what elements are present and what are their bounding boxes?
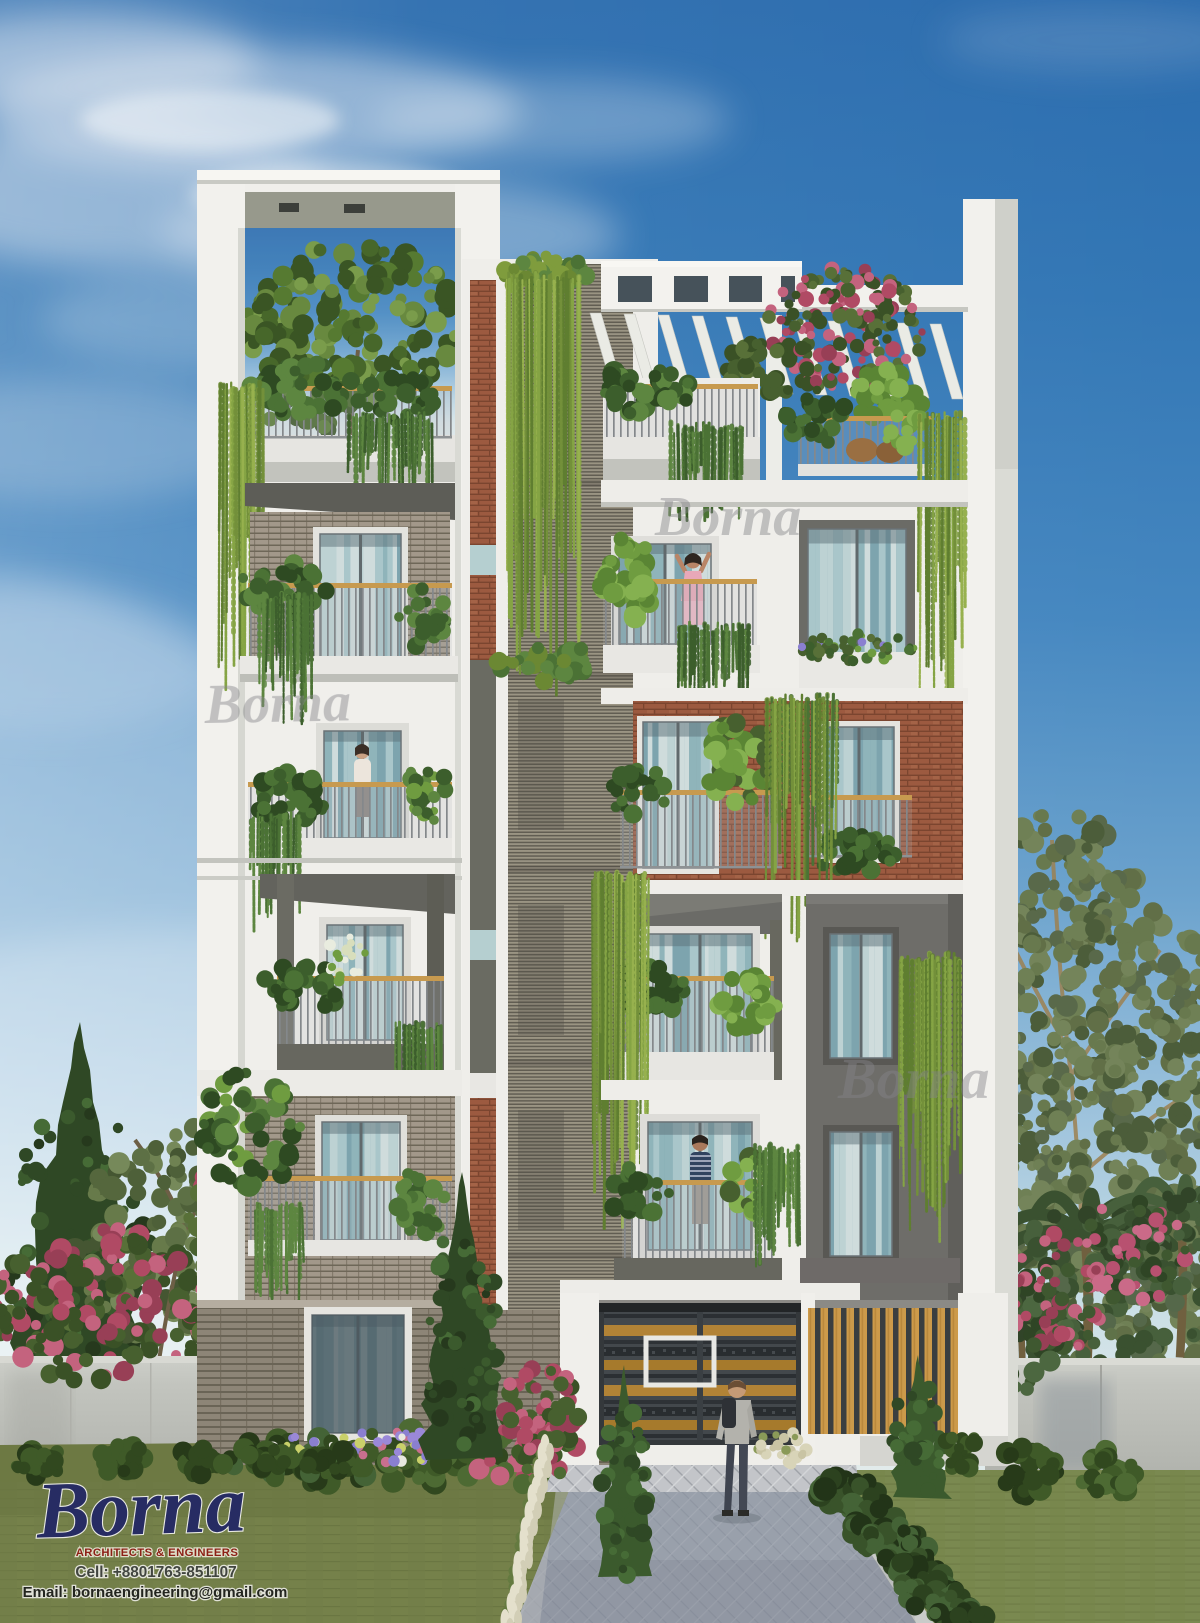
svg-text:Borna: Borna <box>837 1046 990 1111</box>
svg-text:Borna: Borna <box>203 671 351 736</box>
svg-text:Borna: Borna <box>654 486 801 548</box>
